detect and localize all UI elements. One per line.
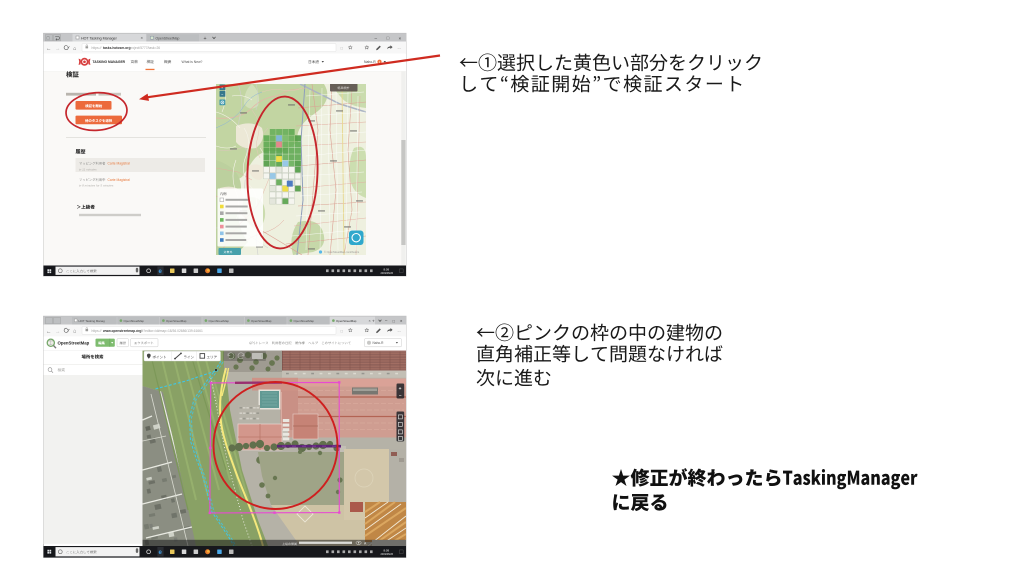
svg-text:+: + <box>204 36 207 42</box>
svg-text:–: – <box>221 93 223 97</box>
svg-text:+: + <box>399 387 402 392</box>
svg-text:in 11 minutes: in 11 minutes <box>79 167 97 171</box>
svg-text:/edit?editor=id#map=18/36.0268: /edit?editor=id#map=18/36.02686/139.6166… <box>137 329 203 333</box>
svg-text:HOT Tasking Manager: HOT Tasking Manager <box>81 36 118 40</box>
svg-text:...: ... <box>398 329 401 333</box>
svg-text:OpenStreetMap: OpenStreetMap <box>124 319 145 323</box>
svg-text:Naho-R: Naho-R <box>373 341 385 345</box>
svg-text:2019/06/26: 2019/06/26 <box>381 272 394 275</box>
svg-text:□: □ <box>387 36 390 41</box>
svg-text:HOT Tasking Manag: HOT Tasking Manag <box>79 319 106 323</box>
svg-text:TASKING MANAGER: TASKING MANAGER <box>93 60 126 64</box>
svg-text:https://: https:// <box>92 329 102 333</box>
svg-text:–: – <box>375 35 378 40</box>
svg-text:OpenStreetMap: OpenStreetMap <box>209 319 230 323</box>
svg-text:OpenStreetMap: OpenStreetMap <box>251 319 272 323</box>
svg-text:□: □ <box>47 35 50 40</box>
svg-text:–: – <box>399 394 402 399</box>
svg-text:→: → <box>55 46 60 52</box>
svg-text:What is New?: What is New? <box>182 60 203 64</box>
svg-text:© OpenStreetMap contributors: © OpenStreetMap contributors <box>324 250 360 254</box>
svg-text:www.openstreetmap.org: www.openstreetmap.org <box>102 329 141 333</box>
svg-text:⌂: ⌂ <box>73 46 76 52</box>
svg-text:×: × <box>399 36 402 41</box>
svg-text:https://: https:// <box>92 46 102 50</box>
svg-text:←: ← <box>46 329 51 335</box>
svg-text:tasks.hotosm.org: tasks.hotosm.org <box>103 46 130 50</box>
svg-text:→: → <box>55 329 60 335</box>
svg-text:...: ... <box>398 46 401 50</box>
svg-text:←: ← <box>46 46 51 52</box>
svg-text:Naho-R: Naho-R <box>364 60 376 64</box>
svg-text:in 8 minutes for 5 minutes: in 8 minutes for 5 minutes <box>79 184 114 188</box>
svg-text:OpenStreetMap: OpenStreetMap <box>294 319 315 323</box>
svg-text:OpenStreetMap: OpenStreetMap <box>166 319 187 323</box>
svg-text:Carte Magistral: Carte Magistral <box>108 178 131 182</box>
svg-text:2019/06/26: 2019/06/26 <box>381 553 394 556</box>
svg-text:OpenStreetMap: OpenStreetMap <box>58 341 90 346</box>
svg-text:×: × <box>369 319 371 323</box>
svg-text:⌂: ⌂ <box>73 329 76 335</box>
svg-text:OpenStreetMap: OpenStreetMap <box>336 319 357 323</box>
svg-text:/project/5777/task=26: /project/5777/task=26 <box>129 46 161 50</box>
svg-text:Carte Magistral: Carte Magistral <box>108 162 131 166</box>
svg-text:+: + <box>372 319 375 324</box>
svg-text:OpenStreetMap: OpenStreetMap <box>156 36 180 40</box>
